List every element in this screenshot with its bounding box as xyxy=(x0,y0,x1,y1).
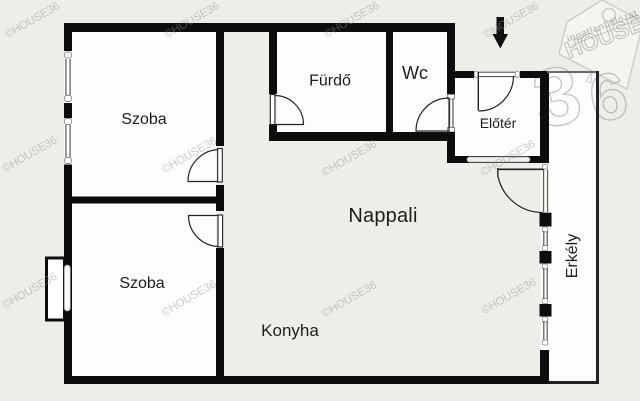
svg-text:Nappali: Nappali xyxy=(348,205,417,227)
svg-text:Fürdő: Fürdő xyxy=(309,73,351,90)
svg-text:Erkély: Erkély xyxy=(564,234,581,278)
svg-text:Wc: Wc xyxy=(402,63,428,83)
svg-text:Szoba: Szoba xyxy=(119,275,164,292)
svg-text:Előtér: Előtér xyxy=(480,115,517,131)
svg-text:Szoba: Szoba xyxy=(121,111,166,128)
svg-text:Konyha: Konyha xyxy=(261,321,319,340)
